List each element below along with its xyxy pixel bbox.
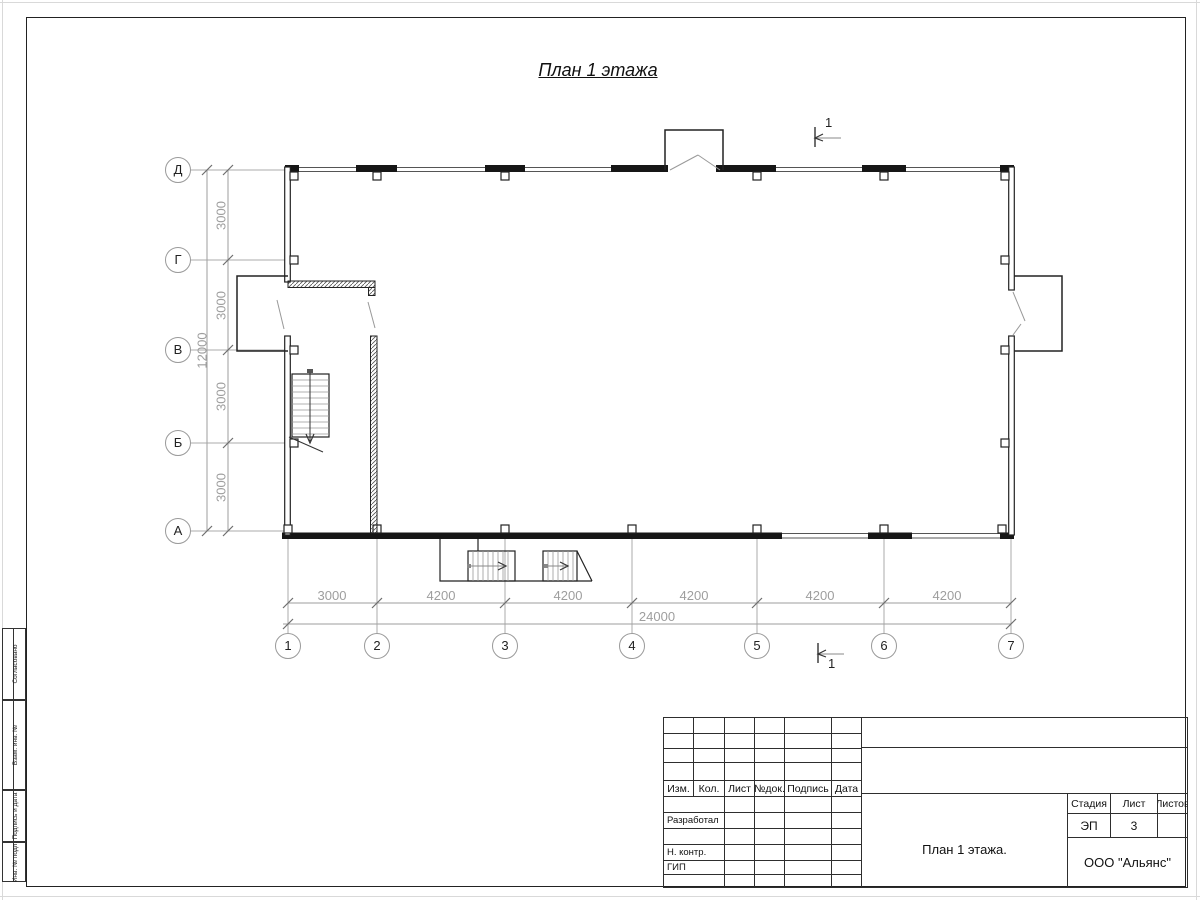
tb-cell [754, 874, 785, 888]
tb-cell [831, 874, 862, 888]
tb-cell [724, 844, 755, 861]
tb-cell [693, 748, 725, 763]
tb-cell [831, 844, 862, 861]
tb-company: ООО "Альянс" [1067, 837, 1188, 888]
dim-h-6: 4200 [923, 588, 971, 603]
tb-sheets-value [1157, 813, 1188, 838]
tb-header-list: Лист [724, 780, 755, 797]
hatched-partitions [288, 281, 377, 533]
tb-cell [754, 844, 785, 861]
exterior-stair [440, 539, 592, 581]
tb-header-date: Дата [831, 780, 862, 797]
tb-cell [663, 717, 694, 734]
section-label-top: 1 [825, 115, 832, 130]
axis-bubble-row-g: Г [165, 247, 191, 273]
tb-cell [663, 762, 694, 781]
tb-cell [724, 733, 755, 749]
tb-role-gip: ГИП [663, 860, 725, 875]
tb-cell [831, 733, 862, 749]
tb-cell [831, 748, 862, 763]
axis-bubble-row-a: А [165, 518, 191, 544]
axis-bubble-col-4: 4 [619, 633, 645, 659]
tb-cell [663, 828, 725, 845]
tb-cell [784, 762, 832, 781]
tb-cell [724, 812, 755, 829]
tb-designation-top [861, 717, 1188, 748]
section-label-bottom: 1 [828, 656, 835, 671]
axis-bubble-col-1: 1 [275, 633, 301, 659]
dim-v-2: 3000 [214, 286, 229, 326]
tb-cell [784, 860, 832, 875]
tb-cell [754, 796, 785, 813]
tb-cell [724, 860, 755, 875]
tb-company-text: ООО "Альянс" [1084, 855, 1171, 870]
axis-grid-lines [191, 170, 1011, 633]
interior-stair [289, 369, 329, 452]
tb-cell [784, 828, 832, 845]
tb-cell [784, 733, 832, 749]
dim-h-5: 4200 [796, 588, 844, 603]
tb-cell [724, 874, 755, 888]
dim-h-4: 4200 [670, 588, 718, 603]
section-mark-top [815, 127, 841, 147]
tb-cell [663, 874, 725, 888]
tb-cell [724, 828, 755, 845]
tb-cell [831, 828, 862, 845]
door-swings [277, 155, 1025, 335]
tb-cell [724, 762, 755, 781]
exterior-walls [282, 165, 1014, 539]
axis-bubble-col-5: 5 [744, 633, 770, 659]
dim-h-total: 24000 [627, 609, 687, 624]
tb-header-sign: Подпись [784, 780, 832, 797]
axis-bubble-col-6: 6 [871, 633, 897, 659]
tb-cell [831, 812, 862, 829]
tb-cell [784, 796, 832, 813]
tb-cell [831, 860, 862, 875]
dimension-lines [207, 170, 1011, 624]
tb-cell [693, 717, 725, 734]
tb-cell [784, 812, 832, 829]
tb-cell [784, 748, 832, 763]
tb-stage-header: Стадия [1067, 793, 1111, 814]
dim-v-1: 3000 [214, 196, 229, 236]
tb-header-doc: №док. [754, 780, 785, 797]
tb-cell [663, 733, 694, 749]
tb-cell [754, 748, 785, 763]
tb-cell [663, 796, 725, 813]
tb-cell [663, 748, 694, 763]
tb-cell [754, 828, 785, 845]
dim-v-4: 3000 [214, 468, 229, 508]
tb-cell [724, 717, 755, 734]
tb-cell [784, 717, 832, 734]
tb-cell [831, 717, 862, 734]
tb-header-izm: Изм. [663, 780, 694, 797]
vestibules [237, 130, 1062, 351]
tb-cell [754, 812, 785, 829]
tb-sheet-value: 3 [1110, 813, 1158, 838]
tb-sheets-header: Листов [1157, 793, 1188, 814]
tb-cell [724, 748, 755, 763]
tb-doc-title: План 1 этажа. [861, 793, 1068, 888]
axis-bubble-row-d: Д [165, 157, 191, 183]
tb-cell [754, 733, 785, 749]
wall-piers [284, 172, 1009, 533]
dim-h-1: 3000 [308, 588, 356, 603]
tb-cell [831, 762, 862, 781]
tb-designation-main [861, 747, 1188, 794]
axis-bubble-row-v: В [165, 337, 191, 363]
dim-h-3: 4200 [544, 588, 592, 603]
dim-v-total: 12000 [195, 327, 210, 375]
tb-header-kol: Кол. [693, 780, 725, 797]
tb-role-nkontr: Н. контр. [663, 844, 725, 861]
tb-cell [693, 762, 725, 781]
tb-cell [754, 762, 785, 781]
dimension-ticks [202, 165, 1016, 629]
drawing-sheet: Согласовано Взам. инв. № Подпись и дата … [0, 0, 1200, 900]
dim-v-3: 3000 [214, 377, 229, 417]
tb-cell [831, 796, 862, 813]
dim-h-2: 4200 [417, 588, 465, 603]
axis-bubble-col-2: 2 [364, 633, 390, 659]
tb-cell [693, 733, 725, 749]
axis-bubble-col-7: 7 [998, 633, 1024, 659]
title-block: Изм. Кол. Лист №док. Подпись Дата Разраб… [663, 717, 1188, 888]
tb-doc-title-text: План 1 этажа. [922, 842, 1007, 857]
tb-cell [754, 860, 785, 875]
tb-sheet-header: Лист [1110, 793, 1158, 814]
axis-bubble-row-b: Б [165, 430, 191, 456]
tb-cell [784, 844, 832, 861]
axis-bubble-col-3: 3 [492, 633, 518, 659]
tb-stage-value: ЭП [1067, 813, 1111, 838]
tb-cell [784, 874, 832, 888]
tb-cell [754, 717, 785, 734]
tb-cell [724, 796, 755, 813]
tb-role-razrabotal: Разработал [663, 812, 725, 829]
